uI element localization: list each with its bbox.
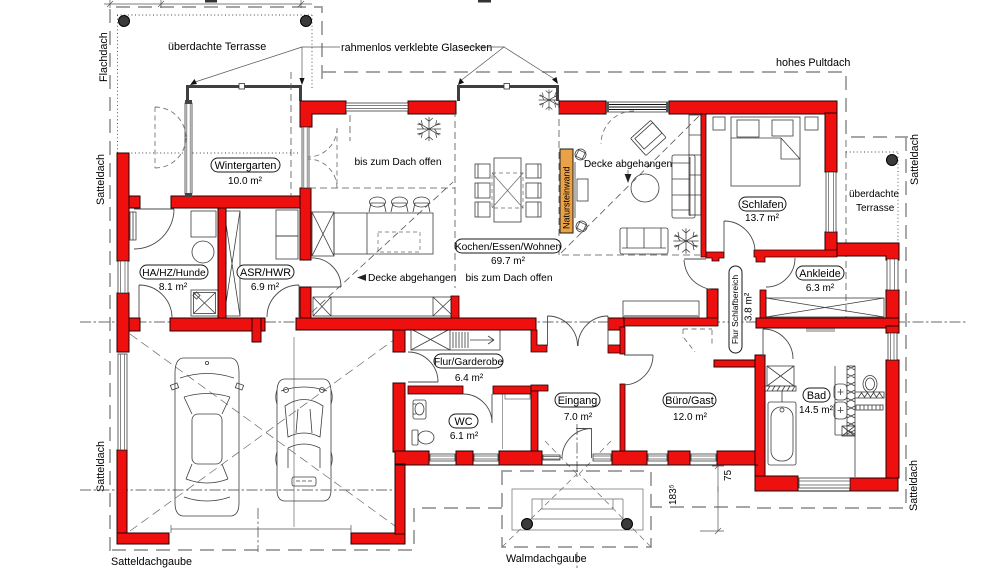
- svg-text:Decke abgehangen: Decke abgehangen: [368, 273, 456, 284]
- svg-text:69.7 m²: 69.7 m²: [491, 256, 526, 267]
- svg-text:7.0 m²: 7.0 m²: [564, 412, 593, 423]
- svg-text:8.1 m²: 8.1 m²: [159, 282, 188, 293]
- svg-text:Walmdachgaube: Walmdachgaube: [506, 553, 587, 565]
- svg-text:Satteldach: Satteldach: [95, 441, 107, 492]
- svg-text:Eingang: Eingang: [558, 395, 598, 407]
- svg-text:ASR/HWR: ASR/HWR: [240, 267, 291, 279]
- svg-text:Büro/Gast: Büro/Gast: [665, 395, 714, 407]
- svg-text:10.0 m²: 10.0 m²: [228, 176, 263, 187]
- svg-text:14.5 m²: 14.5 m²: [799, 405, 834, 416]
- svg-text:Satteldach: Satteldach: [95, 154, 107, 205]
- svg-text:Satteldachgaube: Satteldachgaube: [111, 556, 192, 568]
- svg-text:12.0 m²: 12.0 m²: [673, 412, 708, 423]
- svg-text:Satteldach: Satteldach: [908, 460, 920, 511]
- svg-text:3.8 m²: 3.8 m²: [744, 292, 755, 321]
- svg-text:Schlafen: Schlafen: [741, 199, 783, 211]
- svg-text:Decke abgehangen: Decke abgehangen: [584, 159, 672, 170]
- svg-text:Flachdach: Flachdach: [98, 32, 110, 82]
- svg-text:überdachte: überdachte: [849, 189, 899, 200]
- svg-text:Kochen/Essen/Wohnen: Kochen/Essen/Wohnen: [455, 242, 561, 253]
- svg-text:Wintergarten: Wintergarten: [215, 160, 277, 172]
- svg-text:hohes Pultdach: hohes Pultdach: [776, 57, 850, 69]
- svg-text:Flur/Garderobe: Flur/Garderobe: [434, 357, 503, 368]
- svg-text:Flur Schlafbereich: Flur Schlafbereich: [730, 275, 740, 344]
- svg-text:rahmenlos verklebte Glasecken: rahmenlos verklebte Glasecken: [341, 42, 492, 54]
- svg-text:bis zum Dach offen: bis zum Dach offen: [354, 157, 441, 168]
- svg-text:6.9 m²: 6.9 m²: [251, 282, 280, 293]
- svg-text:6.1 m²: 6.1 m²: [450, 431, 479, 442]
- svg-text:Terrasse: Terrasse: [856, 203, 895, 214]
- svg-text:183⁵: 183⁵: [668, 484, 679, 505]
- svg-text:6.4 m²: 6.4 m²: [455, 373, 484, 384]
- svg-text:überdachte Terrasse: überdachte Terrasse: [168, 41, 266, 53]
- svg-text:Satteldach: Satteldach: [909, 134, 921, 185]
- svg-text:bis zum Dach offen: bis zum Dach offen: [465, 273, 552, 284]
- svg-text:13.7 m²: 13.7 m²: [745, 213, 780, 224]
- svg-text:Ankleide: Ankleide: [799, 268, 840, 280]
- svg-text:HA/HZ/Hunde: HA/HZ/Hunde: [142, 268, 206, 279]
- svg-text:6.3 m²: 6.3 m²: [806, 283, 835, 294]
- svg-text:WC: WC: [455, 416, 473, 428]
- svg-text:75: 75: [723, 469, 734, 481]
- svg-text:Bad: Bad: [807, 390, 826, 402]
- svg-text:Natursteinwand: Natursteinwand: [562, 166, 572, 229]
